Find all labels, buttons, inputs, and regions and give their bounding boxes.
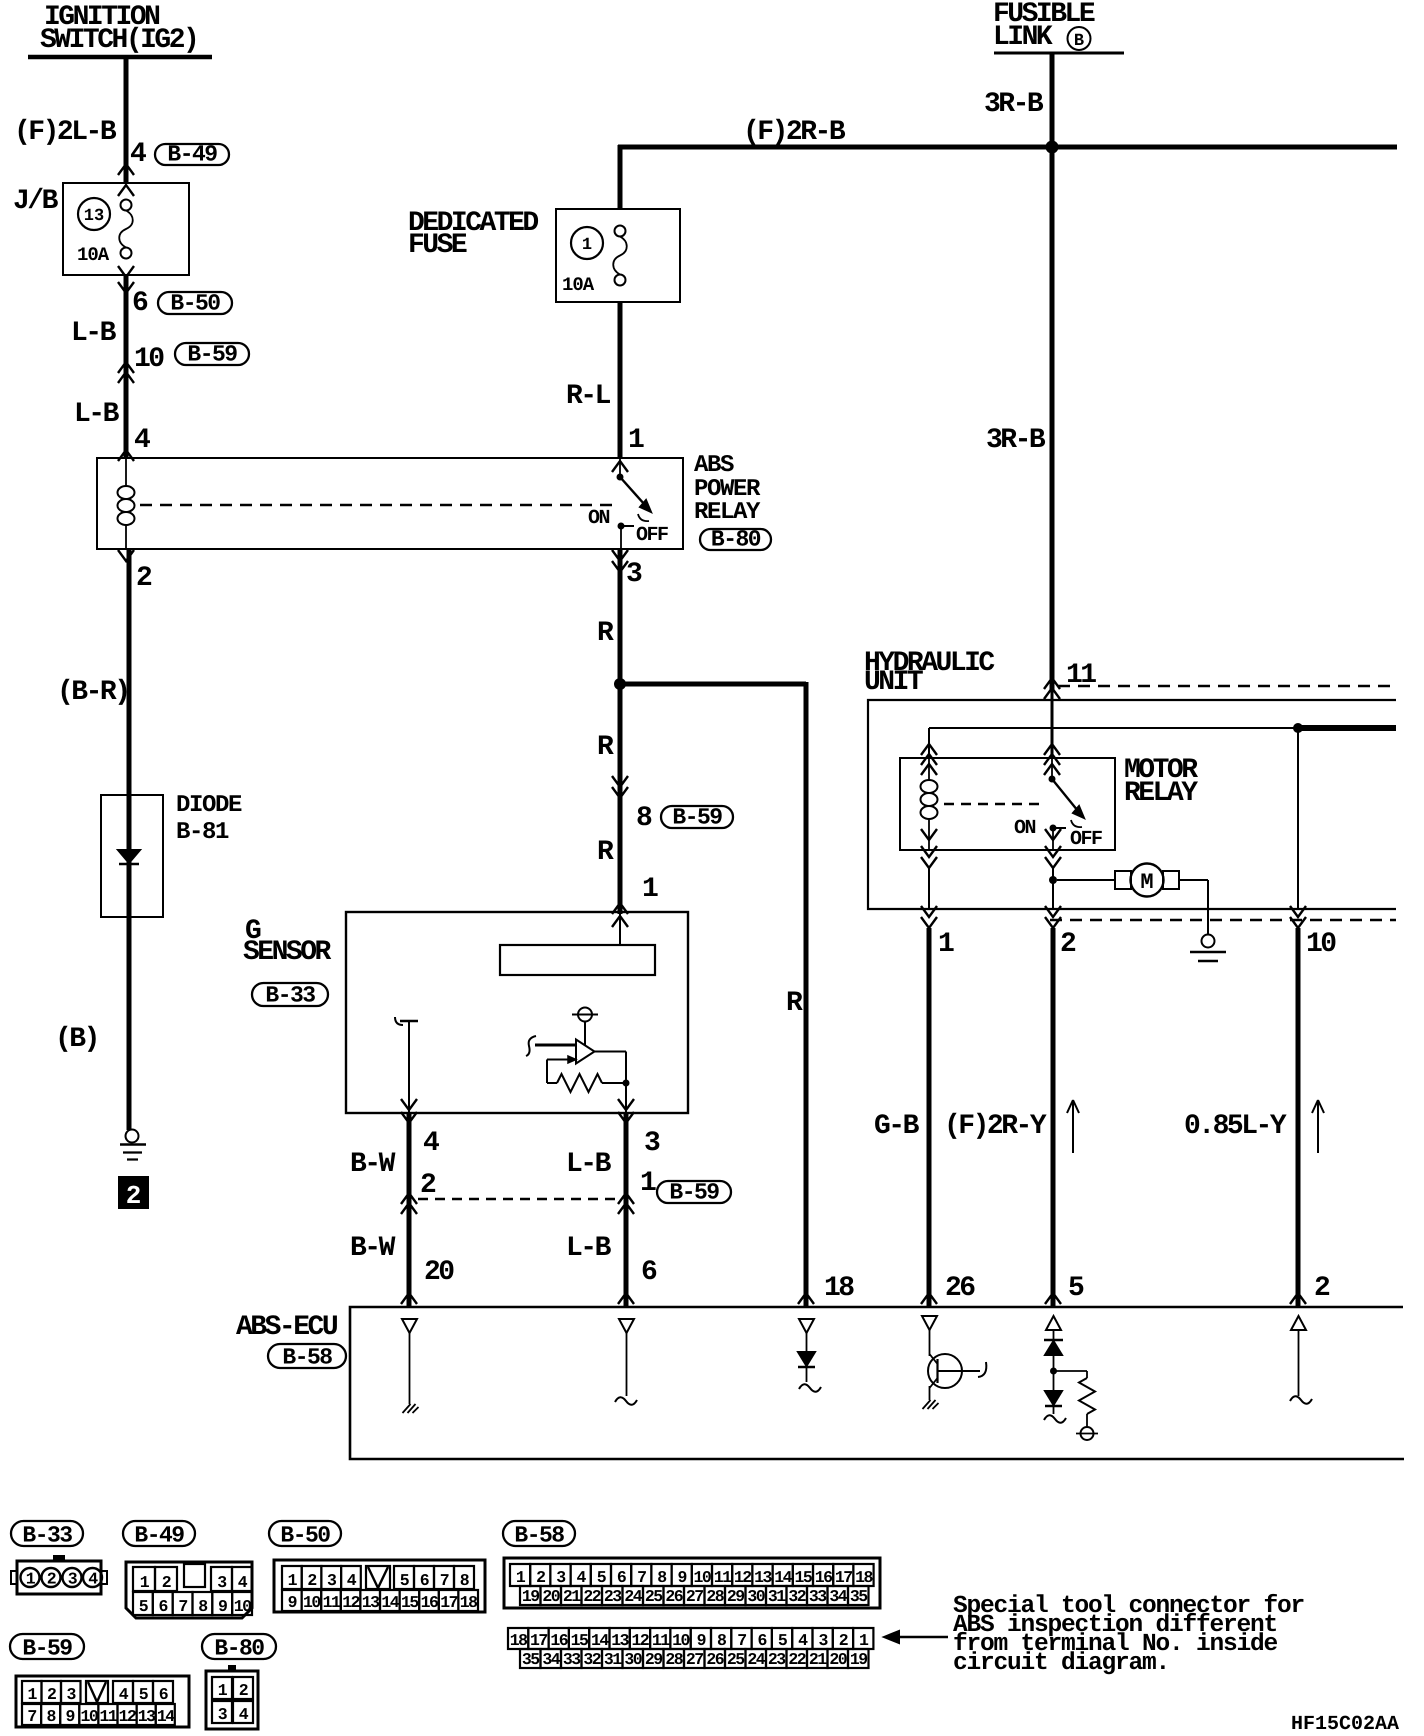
svg-text:10: 10 bbox=[672, 1631, 689, 1650]
svg-text:8: 8 bbox=[636, 803, 652, 834]
svg-text:23: 23 bbox=[768, 1650, 786, 1669]
svg-text:12: 12 bbox=[632, 1631, 649, 1650]
svg-text:B-W: B-W bbox=[350, 1233, 396, 1264]
svg-text:10: 10 bbox=[134, 344, 164, 375]
svg-text:20: 20 bbox=[542, 1587, 559, 1606]
svg-text:2: 2 bbox=[126, 1181, 142, 1211]
svg-text:13: 13 bbox=[84, 207, 104, 226]
svg-text:33: 33 bbox=[563, 1650, 581, 1669]
svg-text:B-50: B-50 bbox=[170, 291, 220, 317]
svg-text:2: 2 bbox=[162, 1573, 171, 1592]
svg-text:28: 28 bbox=[706, 1587, 724, 1606]
svg-text:L-B: L-B bbox=[566, 1149, 612, 1180]
svg-text:4: 4 bbox=[134, 425, 150, 456]
svg-text:6: 6 bbox=[159, 1685, 168, 1704]
svg-text:2: 2 bbox=[47, 1685, 56, 1704]
svg-text:M: M bbox=[1140, 870, 1153, 895]
svg-text:24: 24 bbox=[747, 1650, 765, 1669]
svg-text:32: 32 bbox=[788, 1587, 805, 1606]
svg-text:5: 5 bbox=[1068, 1273, 1084, 1304]
svg-text:B-33: B-33 bbox=[22, 1523, 72, 1549]
svg-text:L-B: L-B bbox=[71, 318, 117, 349]
svg-text:33: 33 bbox=[809, 1587, 827, 1606]
svg-text:B: B bbox=[1074, 32, 1084, 51]
svg-text:10: 10 bbox=[303, 1593, 320, 1612]
svg-text:26: 26 bbox=[706, 1650, 723, 1669]
svg-text:ABS-ECU: ABS-ECU bbox=[236, 1312, 338, 1343]
svg-text:ON: ON bbox=[588, 507, 610, 530]
svg-text:3: 3 bbox=[626, 559, 642, 590]
svg-text:15: 15 bbox=[571, 1631, 589, 1650]
svg-text:9: 9 bbox=[66, 1707, 75, 1726]
svg-text:12: 12 bbox=[342, 1593, 359, 1612]
svg-text:11: 11 bbox=[323, 1593, 341, 1612]
svg-text:13: 13 bbox=[138, 1707, 156, 1726]
svg-text:3R-B: 3R-B bbox=[986, 425, 1046, 456]
svg-text:4: 4 bbox=[130, 139, 146, 170]
svg-text:21: 21 bbox=[809, 1650, 827, 1669]
svg-text:B-59: B-59 bbox=[187, 342, 237, 368]
svg-text:9: 9 bbox=[218, 1597, 227, 1616]
svg-text:11: 11 bbox=[100, 1707, 118, 1726]
svg-text:RELAY: RELAY bbox=[694, 499, 761, 526]
svg-text:1: 1 bbox=[938, 929, 954, 960]
svg-text:B-59: B-59 bbox=[672, 805, 722, 831]
svg-text:31: 31 bbox=[768, 1587, 786, 1606]
svg-text:9: 9 bbox=[677, 1568, 686, 1587]
svg-text:2: 2 bbox=[307, 1571, 316, 1590]
svg-text:14: 14 bbox=[157, 1707, 175, 1726]
svg-text:DIODE: DIODE bbox=[176, 792, 242, 819]
svg-text:13: 13 bbox=[362, 1593, 380, 1612]
svg-text:15: 15 bbox=[794, 1568, 812, 1587]
svg-text:29: 29 bbox=[645, 1650, 662, 1669]
svg-text:21: 21 bbox=[563, 1587, 581, 1606]
svg-text:6: 6 bbox=[158, 1597, 167, 1616]
svg-text:9: 9 bbox=[288, 1593, 297, 1612]
svg-text:12: 12 bbox=[119, 1707, 136, 1726]
svg-text:31: 31 bbox=[604, 1650, 622, 1669]
svg-text:B-58: B-58 bbox=[514, 1523, 564, 1549]
svg-text:16: 16 bbox=[815, 1568, 832, 1587]
svg-text:OFF: OFF bbox=[1070, 828, 1102, 851]
svg-text:18: 18 bbox=[855, 1568, 873, 1587]
svg-text:3: 3 bbox=[644, 1128, 660, 1159]
svg-text:17: 17 bbox=[440, 1593, 457, 1612]
svg-text:G-B: G-B bbox=[874, 1111, 920, 1142]
svg-text:R-L: R-L bbox=[566, 381, 611, 412]
svg-text:22: 22 bbox=[788, 1650, 805, 1669]
svg-text:26: 26 bbox=[945, 1273, 975, 1304]
svg-text:30: 30 bbox=[624, 1650, 641, 1669]
svg-text:32: 32 bbox=[583, 1650, 600, 1669]
svg-text:(B-R): (B-R) bbox=[57, 677, 129, 708]
svg-text:B-81: B-81 bbox=[176, 819, 229, 846]
svg-text:6: 6 bbox=[132, 288, 148, 319]
svg-text:19: 19 bbox=[522, 1587, 539, 1606]
svg-text:2: 2 bbox=[239, 1681, 248, 1700]
svg-text:11: 11 bbox=[714, 1568, 732, 1587]
svg-text:(F)2R-B: (F)2R-B bbox=[743, 117, 846, 148]
svg-text:1: 1 bbox=[640, 1168, 656, 1199]
svg-text:B-33: B-33 bbox=[265, 983, 315, 1009]
svg-text:4: 4 bbox=[423, 1128, 439, 1159]
svg-text:14: 14 bbox=[591, 1631, 609, 1650]
svg-text:B-59: B-59 bbox=[22, 1636, 72, 1662]
svg-text:B-80: B-80 bbox=[214, 1636, 264, 1662]
svg-text:34: 34 bbox=[542, 1650, 560, 1669]
svg-text:12: 12 bbox=[734, 1568, 751, 1587]
svg-text:(F)2R-Y: (F)2R-Y bbox=[944, 1111, 1047, 1142]
svg-text:B-58: B-58 bbox=[282, 1345, 332, 1371]
svg-text:18: 18 bbox=[510, 1631, 528, 1650]
svg-text:34: 34 bbox=[829, 1587, 847, 1606]
svg-text:SWITCH(IG2): SWITCH(IG2) bbox=[40, 25, 197, 56]
svg-text:FUSE: FUSE bbox=[408, 230, 467, 261]
svg-text:15: 15 bbox=[401, 1593, 419, 1612]
svg-text:L-B: L-B bbox=[74, 399, 120, 430]
svg-text:6: 6 bbox=[617, 1568, 626, 1587]
svg-text:22: 22 bbox=[583, 1587, 600, 1606]
svg-text:6: 6 bbox=[758, 1631, 767, 1650]
svg-text:HF15C02AA: HF15C02AA bbox=[1291, 1713, 1399, 1736]
svg-text:35: 35 bbox=[850, 1587, 868, 1606]
svg-text:2: 2 bbox=[420, 1170, 436, 1201]
svg-text:25: 25 bbox=[727, 1650, 745, 1669]
svg-text:20: 20 bbox=[829, 1650, 846, 1669]
svg-text:0.85L-Y: 0.85L-Y bbox=[1184, 1111, 1287, 1142]
svg-text:28: 28 bbox=[665, 1650, 683, 1669]
svg-text:10A: 10A bbox=[562, 274, 595, 296]
svg-text:3R-B: 3R-B bbox=[984, 89, 1044, 120]
svg-text:10: 10 bbox=[234, 1597, 251, 1616]
svg-text:2: 2 bbox=[136, 563, 152, 594]
svg-text:B-50: B-50 bbox=[280, 1523, 330, 1549]
svg-text:LINK: LINK bbox=[993, 22, 1053, 53]
svg-text:J/B: J/B bbox=[13, 186, 59, 217]
svg-text:26: 26 bbox=[665, 1587, 682, 1606]
svg-text:19: 19 bbox=[850, 1650, 867, 1669]
svg-text:2: 2 bbox=[536, 1568, 545, 1587]
svg-text:RELAY: RELAY bbox=[1124, 778, 1198, 809]
svg-text:6: 6 bbox=[641, 1257, 657, 1288]
svg-text:ABS: ABS bbox=[694, 452, 734, 479]
svg-text:1: 1 bbox=[628, 425, 644, 456]
svg-text:SENSOR: SENSOR bbox=[243, 937, 332, 968]
svg-text:10: 10 bbox=[80, 1707, 97, 1726]
svg-text:24: 24 bbox=[624, 1587, 642, 1606]
svg-text:35: 35 bbox=[522, 1650, 540, 1669]
svg-text:UNIT: UNIT bbox=[864, 667, 923, 698]
svg-text:B-W: B-W bbox=[350, 1149, 396, 1180]
svg-text:20: 20 bbox=[424, 1257, 454, 1288]
svg-text:OFF: OFF bbox=[636, 524, 668, 547]
svg-text:27: 27 bbox=[686, 1650, 703, 1669]
svg-text:6: 6 bbox=[420, 1571, 429, 1590]
svg-text:circuit diagram.: circuit diagram. bbox=[953, 1650, 1169, 1677]
svg-text:27: 27 bbox=[686, 1587, 703, 1606]
svg-text:13: 13 bbox=[611, 1631, 629, 1650]
svg-text:(B): (B) bbox=[55, 1024, 98, 1055]
svg-text:10: 10 bbox=[693, 1568, 710, 1587]
svg-text:B-49: B-49 bbox=[167, 142, 217, 168]
svg-text:9: 9 bbox=[697, 1631, 706, 1650]
svg-text:7: 7 bbox=[440, 1571, 449, 1590]
svg-text:17: 17 bbox=[835, 1568, 852, 1587]
svg-text:1: 1 bbox=[582, 236, 592, 255]
svg-text:B-80: B-80 bbox=[711, 527, 761, 553]
svg-text:17: 17 bbox=[530, 1631, 547, 1650]
svg-text:16: 16 bbox=[421, 1593, 438, 1612]
svg-text:L-B: L-B bbox=[566, 1233, 612, 1264]
svg-text:7: 7 bbox=[637, 1568, 646, 1587]
svg-text:11: 11 bbox=[652, 1631, 670, 1650]
svg-text:14: 14 bbox=[774, 1568, 792, 1587]
svg-text:29: 29 bbox=[727, 1587, 744, 1606]
svg-text:25: 25 bbox=[645, 1587, 663, 1606]
svg-text:2: 2 bbox=[47, 1570, 56, 1589]
svg-text:14: 14 bbox=[381, 1593, 399, 1612]
svg-text:(F)2L-B: (F)2L-B bbox=[14, 117, 117, 148]
svg-text:1: 1 bbox=[642, 874, 658, 905]
svg-text:2: 2 bbox=[839, 1631, 848, 1650]
svg-text:2: 2 bbox=[1314, 1273, 1330, 1304]
svg-text:16: 16 bbox=[550, 1631, 567, 1650]
svg-text:23: 23 bbox=[604, 1587, 622, 1606]
svg-text:B-49: B-49 bbox=[134, 1523, 184, 1549]
svg-text:ON: ON bbox=[1014, 817, 1036, 840]
svg-text:B-59: B-59 bbox=[669, 1180, 719, 1206]
svg-text:7: 7 bbox=[27, 1707, 36, 1726]
svg-text:7: 7 bbox=[178, 1597, 187, 1616]
svg-text:18: 18 bbox=[824, 1273, 854, 1304]
svg-text:10: 10 bbox=[1306, 929, 1336, 960]
svg-text:13: 13 bbox=[754, 1568, 772, 1587]
svg-text:7: 7 bbox=[737, 1631, 746, 1650]
svg-text:30: 30 bbox=[747, 1587, 764, 1606]
svg-text:2: 2 bbox=[1060, 929, 1076, 960]
svg-text:18: 18 bbox=[460, 1593, 478, 1612]
svg-text:10A: 10A bbox=[77, 244, 110, 266]
